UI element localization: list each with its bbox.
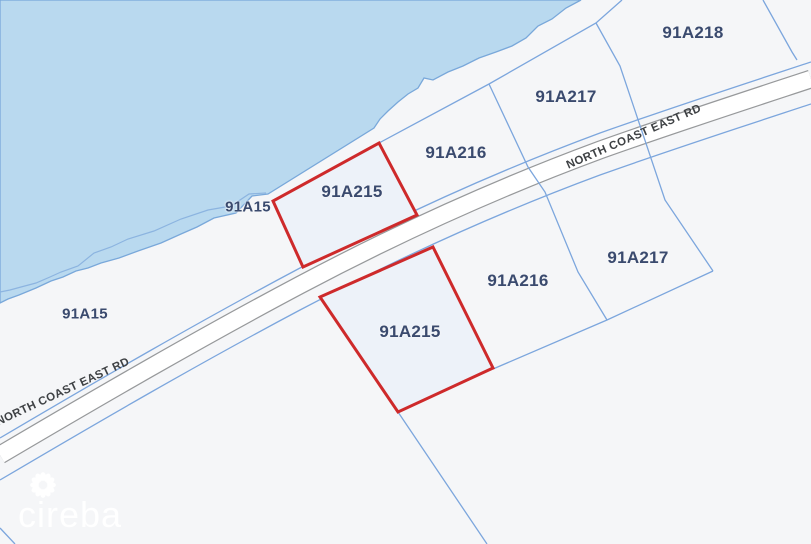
parcel-label-91A215-upper: 91A215 [321, 182, 382, 202]
parcel-label-91A215-lower: 91A215 [379, 322, 440, 342]
parcel-label-91A15-east: 91A15 [225, 199, 271, 216]
parcel-label-91A217-upper: 91A217 [535, 87, 596, 107]
parcel-label-91A217-lower: 91A217 [607, 248, 668, 268]
map-layers [0, 0, 811, 544]
parcel-label-91A216-upper: 91A216 [425, 143, 486, 163]
map-canvas[interactable]: 91A215 91A216 91A217 91A218 91A215 91A21… [0, 0, 811, 544]
parcel-label-91A15-west: 91A15 [62, 306, 108, 323]
parcel-label-91A218: 91A218 [662, 23, 723, 43]
parcel-label-91A216-lower: 91A216 [487, 271, 548, 291]
